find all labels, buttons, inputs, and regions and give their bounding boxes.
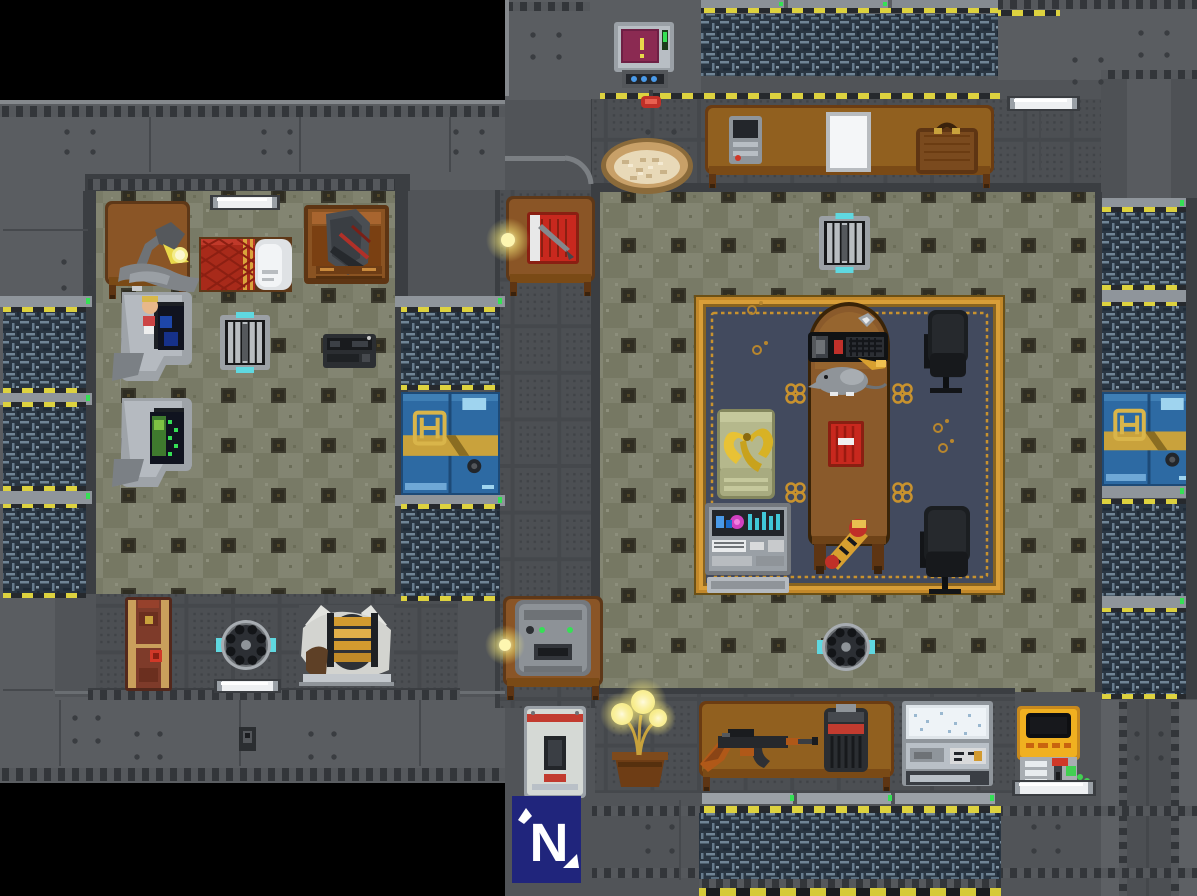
svg-text:N: N xyxy=(530,813,569,873)
